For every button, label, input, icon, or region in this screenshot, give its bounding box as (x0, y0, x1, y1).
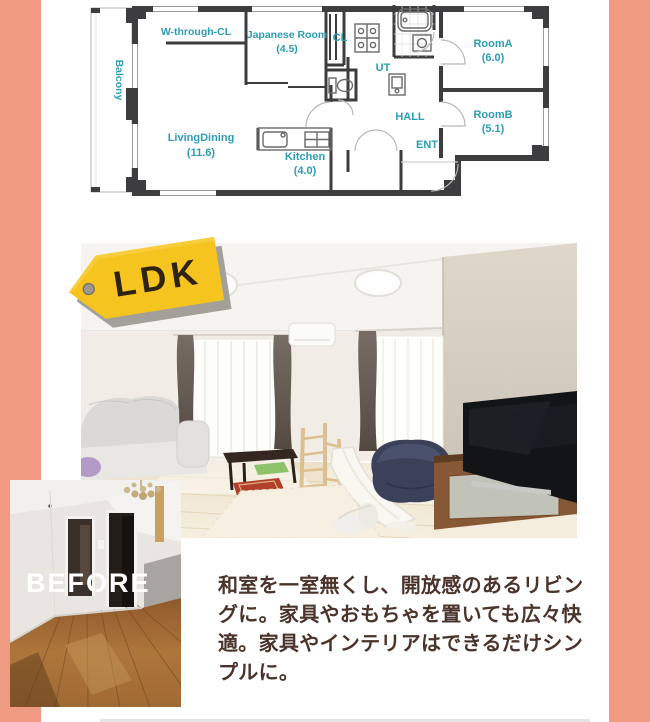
room-size-room-b: (5.1) (482, 123, 505, 135)
floor-plan-diagram: Balcony (86, 2, 550, 198)
room-label-cl: CL (333, 32, 348, 44)
air-conditioner (289, 323, 335, 346)
room-label-hall: HALL (395, 111, 425, 123)
room-label-ut: UT (376, 62, 391, 74)
room-label-living-dining: LivingDining (168, 132, 235, 144)
ceiling-light (355, 270, 401, 296)
tv (463, 391, 577, 503)
balcony-area: Balcony (91, 8, 132, 192)
room-label-room-a: RoomA (473, 38, 512, 50)
room-label-balcony: Balcony (113, 60, 125, 101)
wood-post (155, 486, 164, 542)
room-label-japanese-room: Japanese Room (247, 29, 328, 41)
room-label-kitchen: Kitchen (285, 151, 326, 163)
curtain (358, 331, 377, 451)
article-page: Balcony (0, 0, 650, 722)
light-switch (98, 540, 104, 549)
room-size-kitchen: (4.0) (294, 165, 317, 177)
room-size-room-a: (6.0) (482, 52, 505, 64)
room-label-ent: ENT (416, 139, 438, 151)
curtain (273, 335, 292, 450)
room-size-japanese-room: (4.5) (276, 43, 298, 55)
ldk-tag: LDK (58, 224, 238, 336)
room-label-w-through-cl: W-through-CL (161, 26, 232, 38)
room-label-room-b: RoomB (473, 109, 512, 121)
description-text: 和室を一室無くし、開放感のあるリビン グに。家具やおもちゃを置いても広々快 適。… (218, 572, 600, 688)
before-room-photo: BEFORE (10, 480, 181, 707)
before-label: BEFORE (26, 568, 151, 599)
room-size-living-dining: (11.6) (187, 147, 215, 159)
